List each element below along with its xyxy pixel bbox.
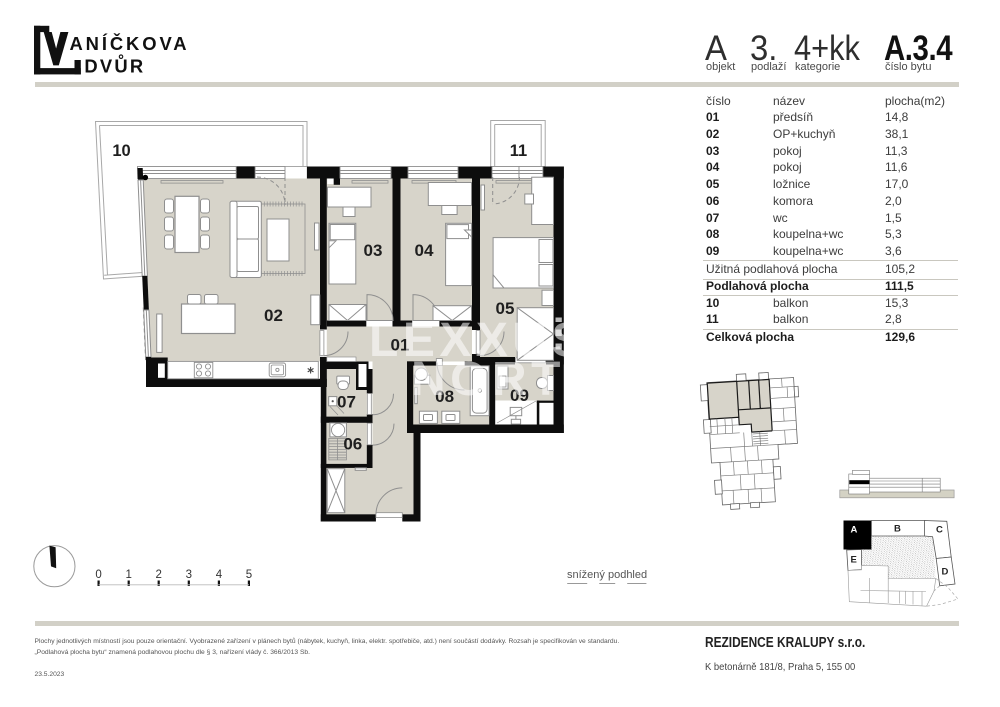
svg-text:2: 2 <box>155 569 161 581</box>
svg-text:3: 3 <box>186 569 192 581</box>
svg-text:06: 06 <box>343 435 362 454</box>
svg-text:11: 11 <box>510 142 527 160</box>
svg-text:C: C <box>936 525 943 536</box>
svg-text:NORTON: NORTON <box>411 353 645 406</box>
svg-text:B: B <box>894 524 901 535</box>
svg-text:02: 02 <box>264 306 283 325</box>
svg-text:07: 07 <box>337 393 356 412</box>
svg-text:03: 03 <box>364 241 383 260</box>
svg-text:snížený podhled: snížený podhled <box>567 569 647 581</box>
svg-text:0: 0 <box>95 569 101 581</box>
svg-text:D: D <box>942 567 949 578</box>
svg-text:E: E <box>851 555 857 566</box>
svg-text:A: A <box>851 525 858 536</box>
svg-text:1: 1 <box>125 569 131 581</box>
svg-text:10: 10 <box>112 142 130 160</box>
svg-text:5: 5 <box>246 569 252 581</box>
svg-text:04: 04 <box>415 241 434 260</box>
svg-text:4: 4 <box>216 569 223 581</box>
